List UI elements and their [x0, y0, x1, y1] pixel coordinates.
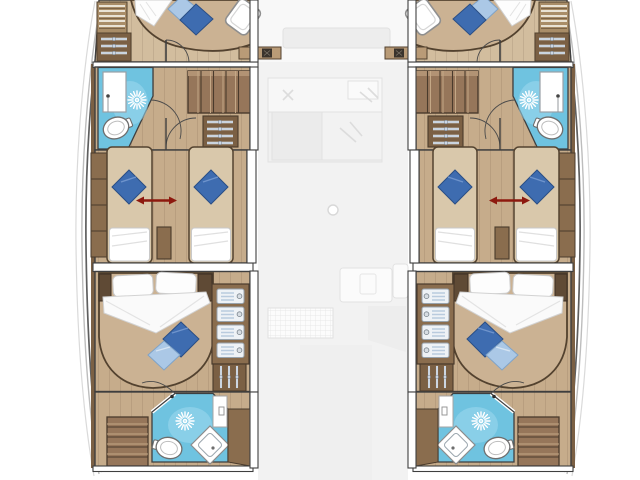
floorplan-canvas — [0, 0, 640, 480]
cockpit-sole-ghost — [300, 345, 372, 480]
floorplan-svg — [0, 0, 640, 480]
saloon-ghost — [268, 78, 382, 162]
mast-step — [328, 205, 338, 215]
cockpit-grating — [268, 308, 333, 338]
forebeam-ghost — [283, 28, 390, 48]
port-hull-render — [76, 0, 281, 476]
starboard-hull-mirrored — [385, 0, 590, 476]
center-deck-ghost — [258, 0, 408, 480]
